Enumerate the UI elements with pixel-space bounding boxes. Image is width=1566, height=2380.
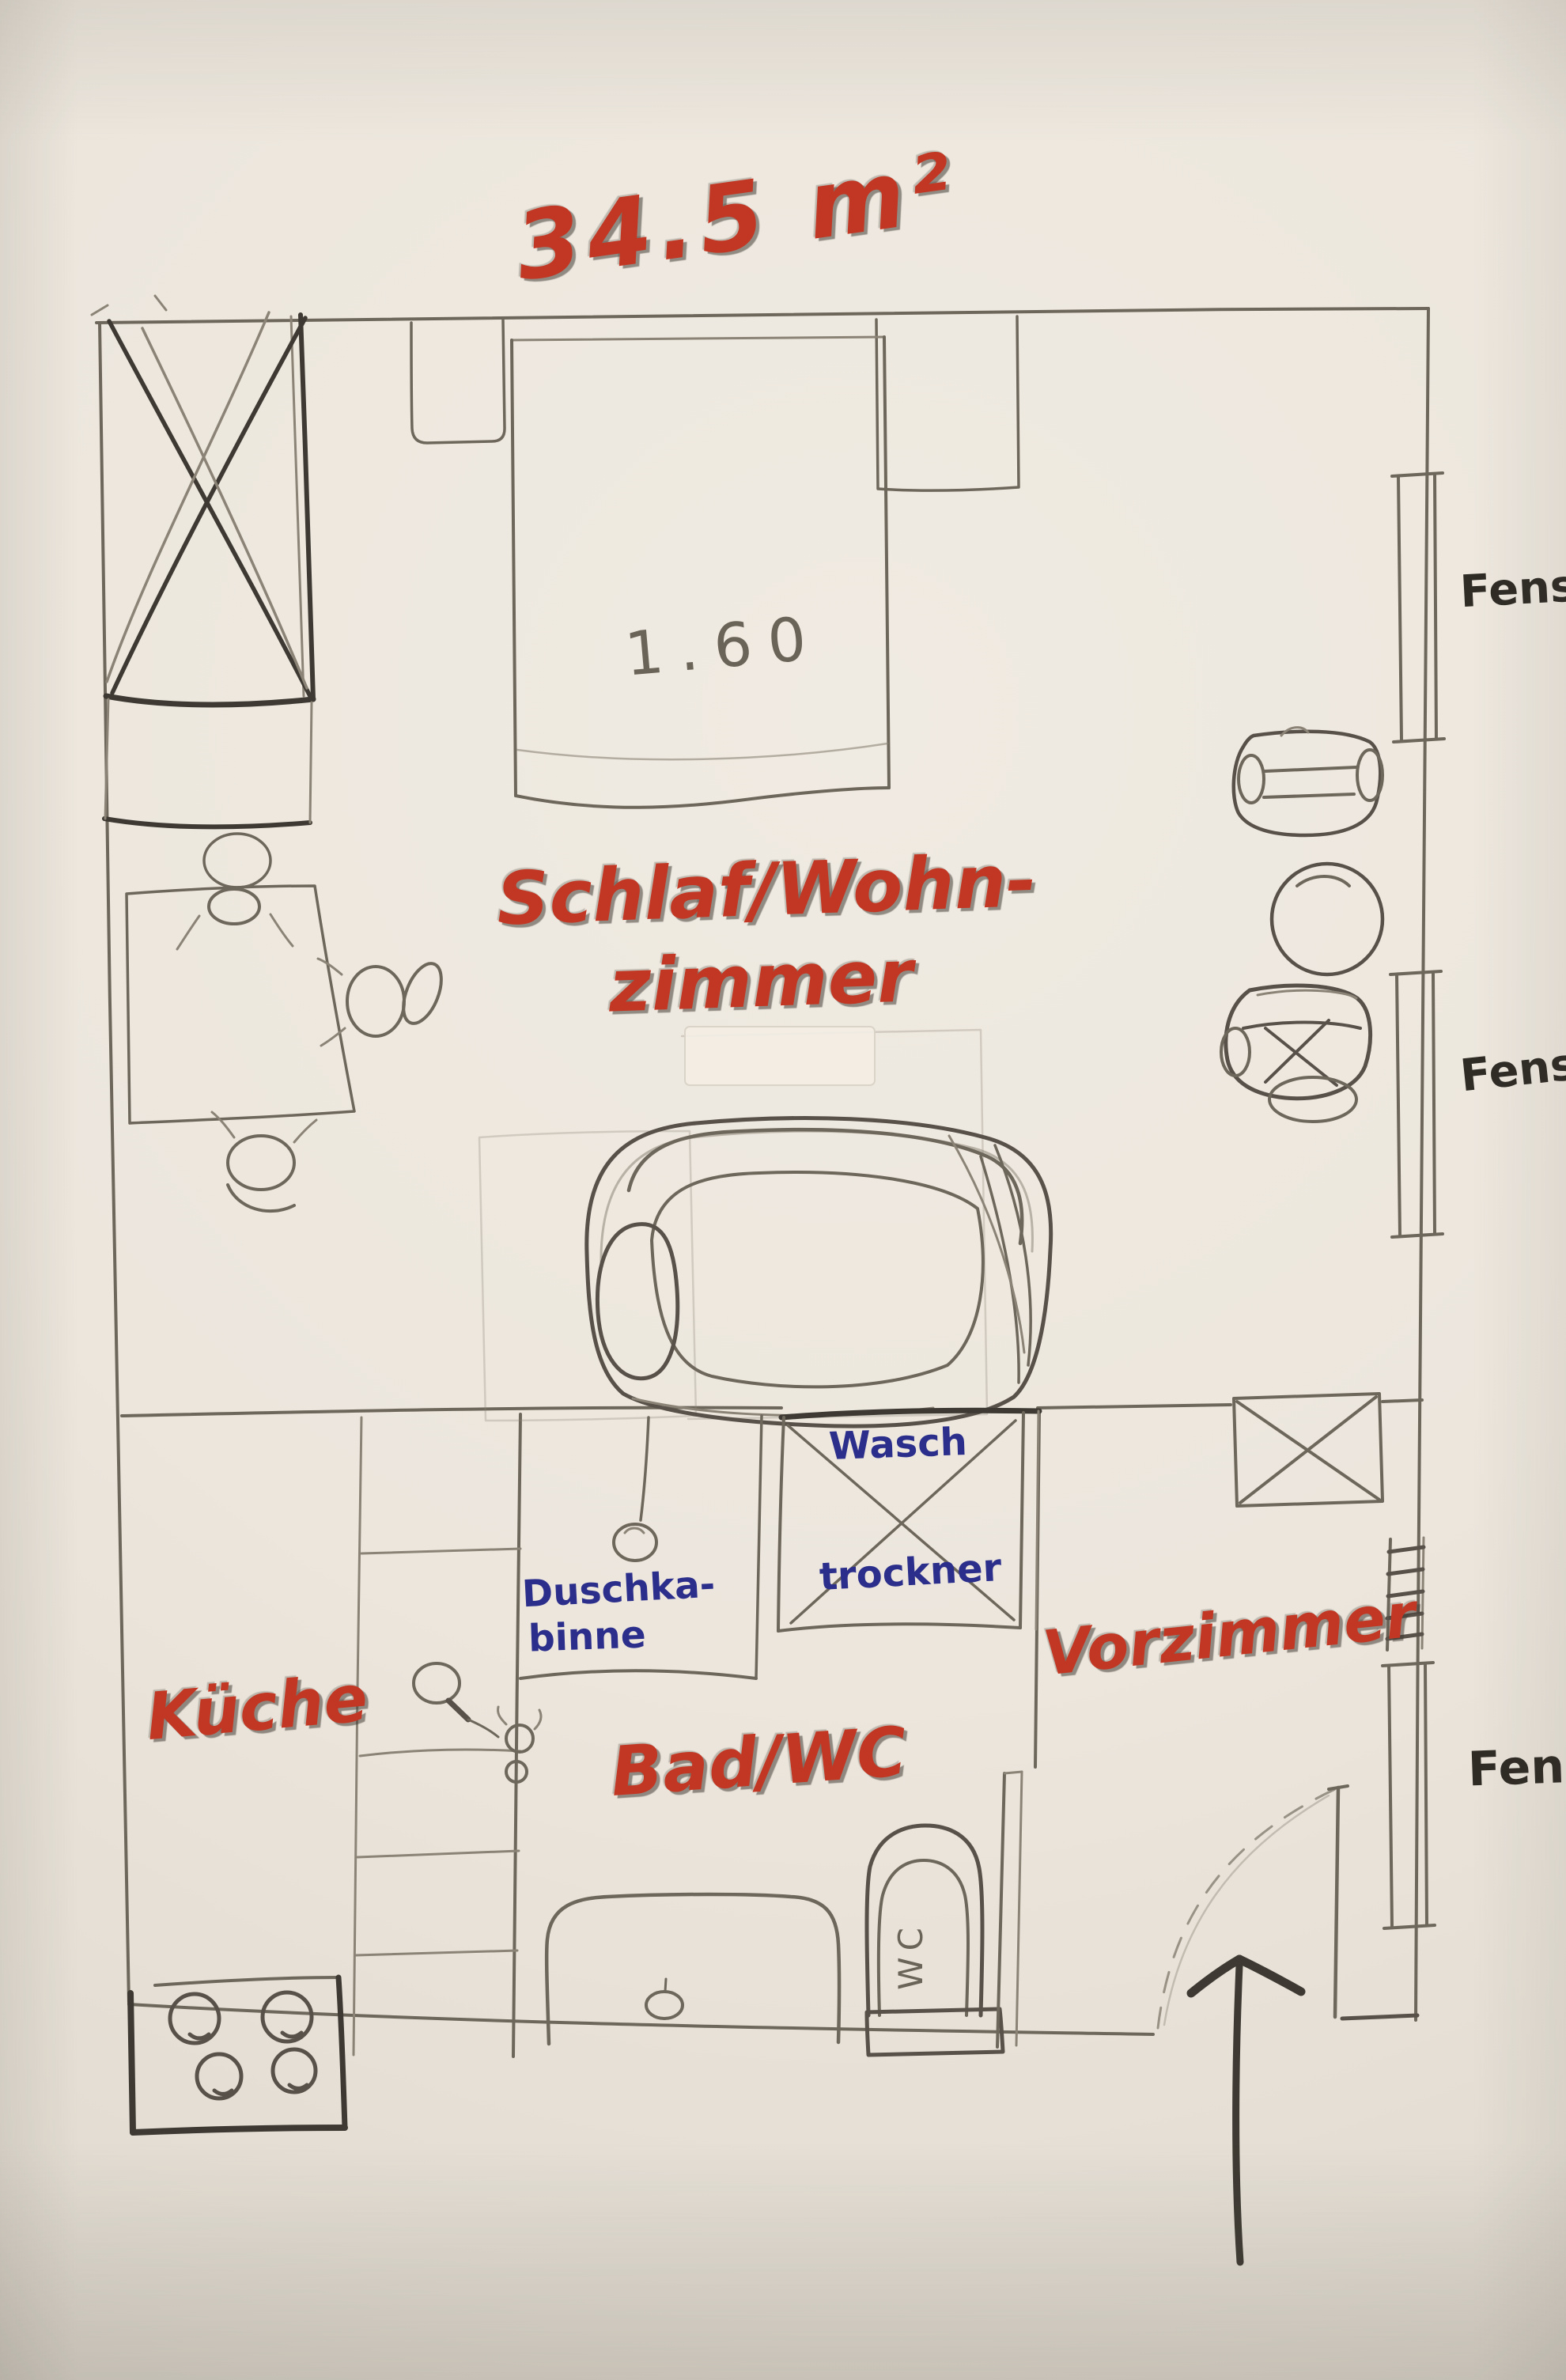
window-1 — [1392, 473, 1444, 742]
stove — [130, 1977, 345, 2132]
sofa — [479, 1027, 1051, 1426]
kitchen-sink — [414, 1663, 541, 1782]
outer-walls — [92, 296, 1428, 2034]
hall-closet — [1234, 1394, 1383, 1506]
washer-dryer — [778, 1410, 1039, 1631]
bathtub — [547, 1894, 839, 2044]
armchair-top — [1234, 728, 1383, 835]
window-3 — [1383, 1663, 1435, 1928]
wardrobe — [104, 312, 313, 827]
window-2 — [1390, 971, 1443, 1237]
interior-walls — [122, 1400, 1422, 2056]
bathroom-door — [997, 1772, 1022, 2047]
entrance-door — [1158, 1786, 1348, 2028]
shower-cabin — [520, 1416, 762, 1678]
round-table — [1272, 864, 1383, 974]
floor-plan-sketch: 34.5 m² 1.60 Schlaf/Wohn- zimmer Wasch t… — [0, 0, 1566, 2380]
entrance-arrow — [1191, 1959, 1301, 2262]
floor-plan-drawing — [0, 0, 1566, 2380]
bed — [411, 316, 1019, 808]
armchair-bottom — [1221, 986, 1371, 1122]
toilet — [867, 1826, 1003, 2055]
dining-table — [127, 834, 449, 1211]
